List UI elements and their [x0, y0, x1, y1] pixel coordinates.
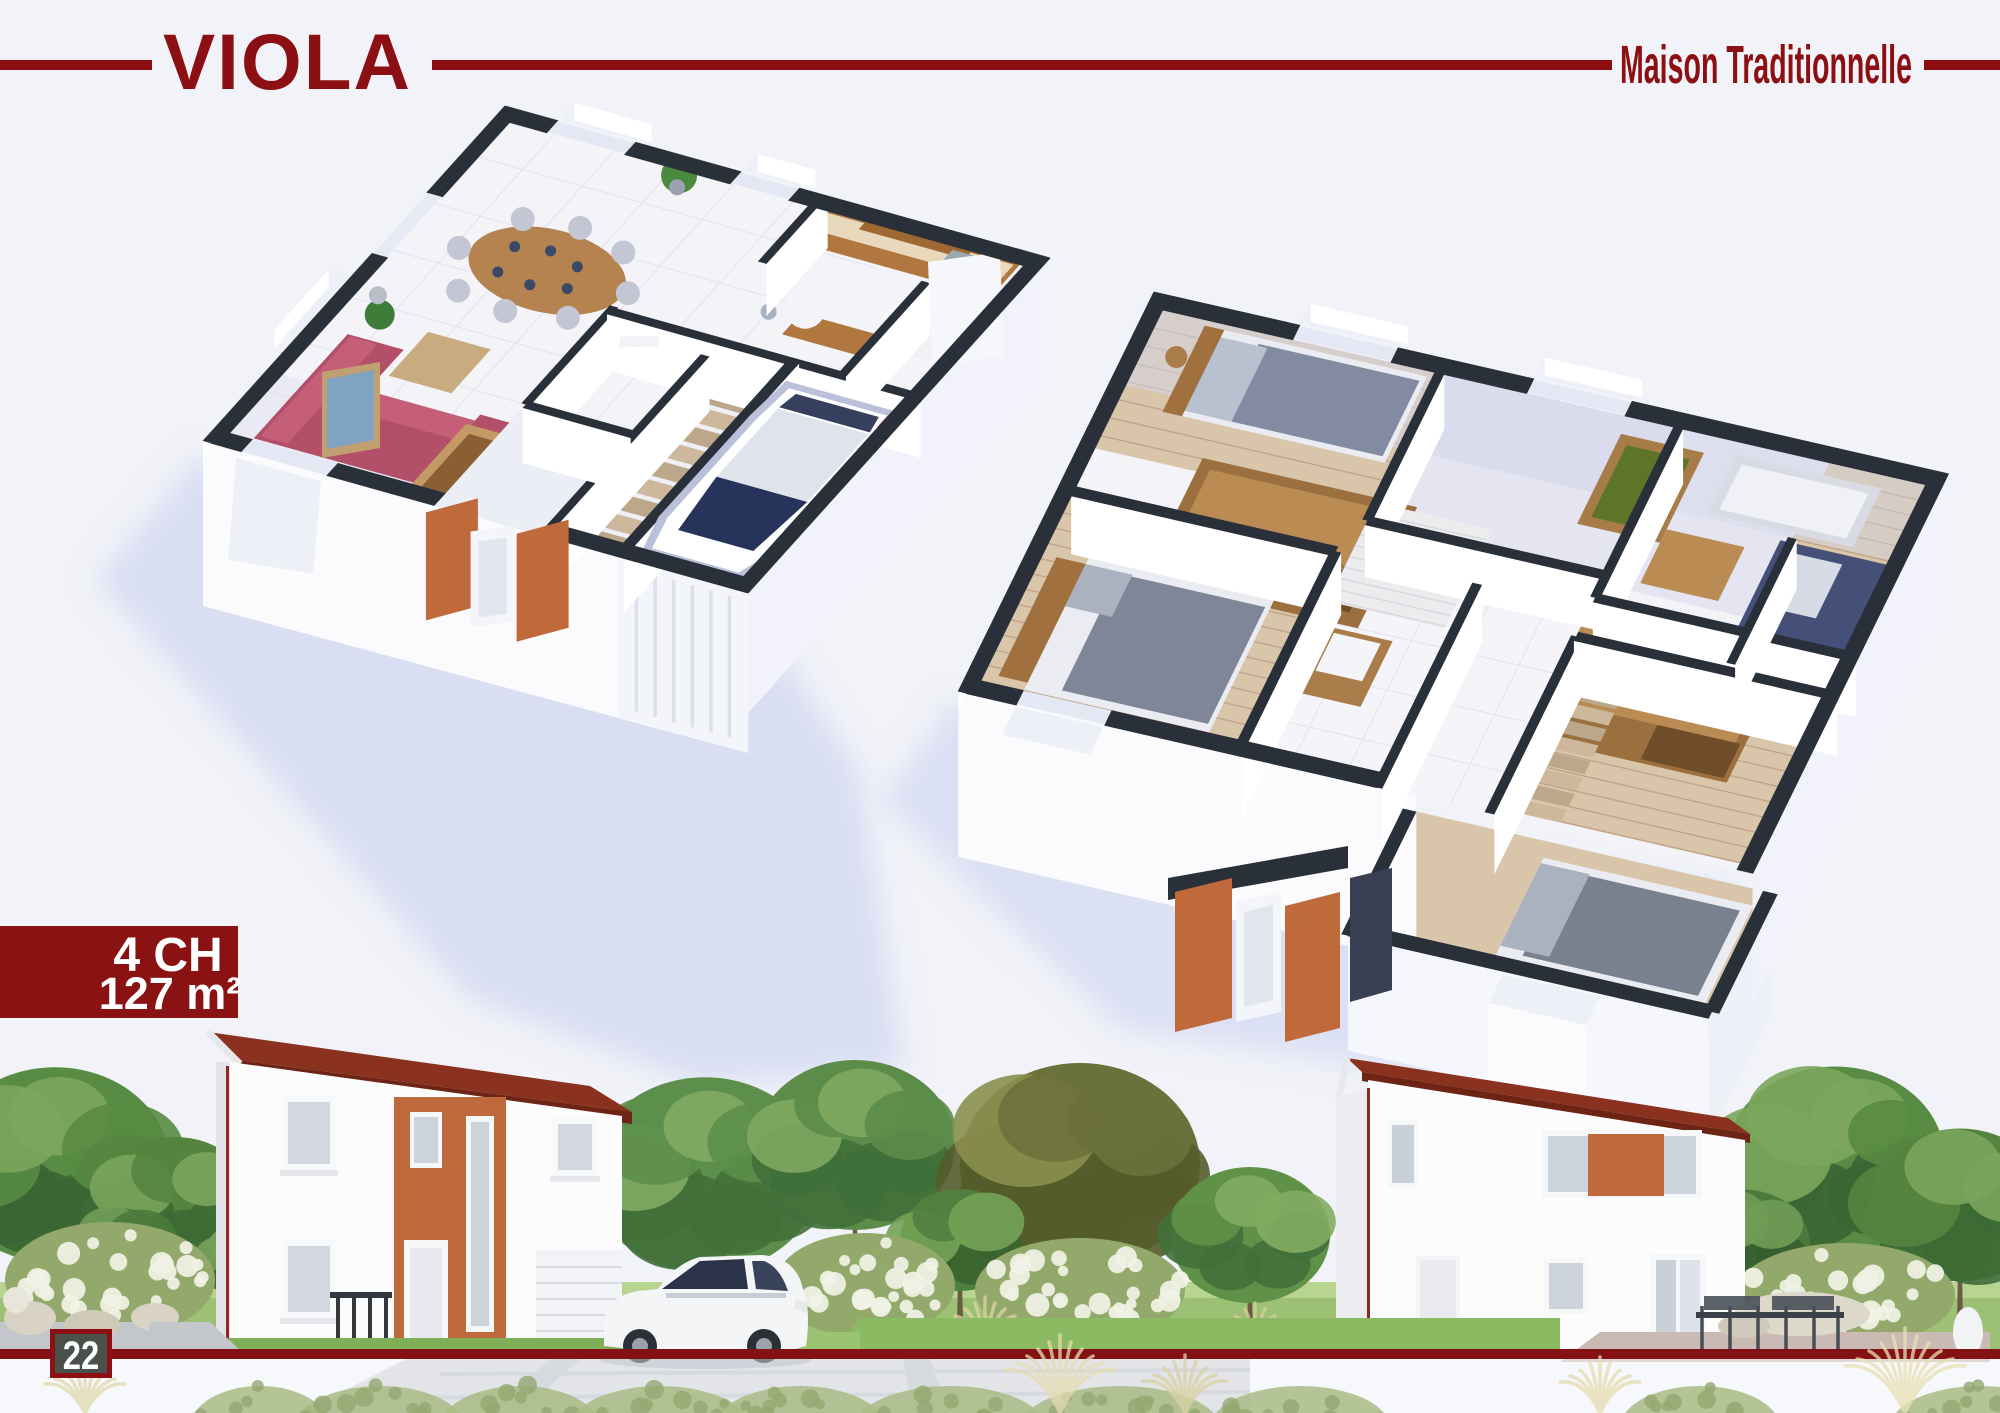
- svg-text:22: 22: [63, 1333, 99, 1378]
- svg-text:VIOLA: VIOLA: [163, 17, 412, 106]
- svg-text:Maison Traditionnelle: Maison Traditionnelle: [1620, 35, 1912, 95]
- svg-text:127 m²: 127 m²: [99, 968, 242, 1019]
